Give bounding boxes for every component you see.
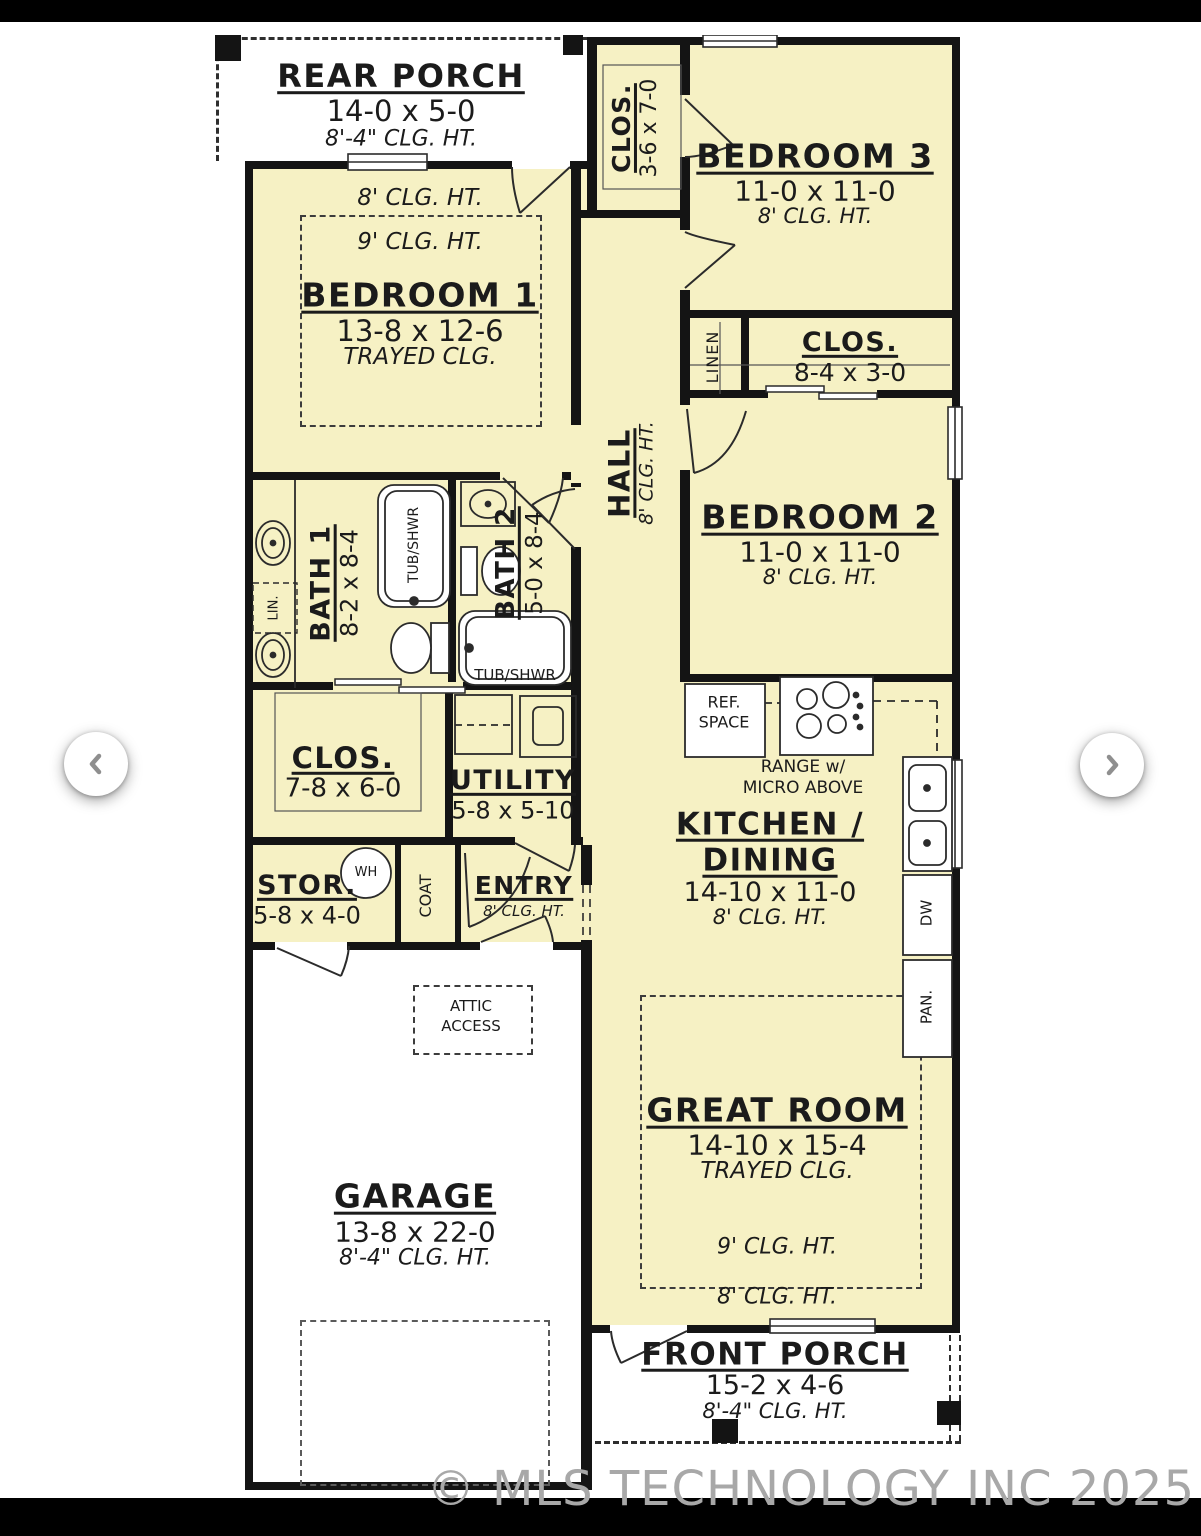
bath1-label: BATH 1 8-2 x 8-4 [306, 524, 365, 642]
bedroom1-clg9: 9' CLG. HT. [357, 230, 483, 254]
bath1-dims: 8-2 x 8-4 [337, 524, 365, 642]
greatroom-clg8: 8' CLG. HT. [717, 1285, 837, 1308]
garage-dims: 13-8 x 22-0 [334, 1217, 495, 1246]
hall-title: HALL [603, 421, 636, 525]
linen-label: LINEN [704, 331, 722, 384]
kitchen-dims: 14-10 x 11-0 [684, 879, 857, 907]
bedroom1-clg8: 8' CLG. HT. [357, 186, 483, 210]
kitchen-title-line2: DINING [702, 845, 837, 878]
attic-line1: ATTIC [450, 999, 492, 1015]
kitchen-title-line1: KITCHEN / [676, 809, 864, 842]
bath2-title: BATH 2 [492, 506, 522, 620]
next-button[interactable] [1080, 733, 1144, 797]
closet-main-dims: 7-8 x 6-0 [285, 775, 402, 802]
greatroom-title: GREAT ROOM [646, 1094, 907, 1129]
entry-ceiling: 8' CLG. HT. [483, 904, 565, 920]
rear-porch-title: REAR PORCH [277, 60, 525, 94]
bath2-dims: 5-0 x 8-4 [522, 506, 548, 620]
bath1-tub-label: TUB/SHWR [406, 507, 422, 583]
greatroom-note: TRAYED CLG. [700, 1159, 853, 1183]
bath2-tub-label: TUB/SHWR [474, 668, 556, 684]
closet-bed3-dims: 3-6 x 7-0 [637, 79, 662, 178]
closet-main-title: CLOS. [292, 743, 395, 773]
previous-button[interactable] [64, 732, 128, 796]
bedroom3-ceiling: 8' CLG. HT. [758, 205, 873, 227]
garage-ceiling: 8'-4" CLG. HT. [339, 1246, 491, 1269]
front-porch-edge-right [949, 1335, 961, 1441]
greatroom-clg9: 9' CLG. HT. [717, 1235, 837, 1258]
attic-line2: ACCESS [441, 1019, 500, 1035]
letterbox-top [0, 0, 1201, 22]
kitchen-ceiling: 8' CLG. HT. [713, 906, 828, 928]
rear-porch-edge [215, 37, 587, 40]
front-porch-edge [595, 1441, 961, 1444]
dishwasher-label: DW [918, 900, 935, 926]
front-porch-dims: 15-2 x 4-6 [706, 1372, 845, 1400]
kitchen-range-line1: RANGE w/ [761, 759, 845, 777]
bath1-linen-label: LIN. [268, 596, 283, 621]
bedroom1-note: TRAYED CLG. [343, 345, 496, 369]
porch-post [563, 35, 583, 55]
closet-bed2-dims: 8-4 x 3-0 [794, 360, 906, 386]
closet-bed2-title: CLOS. [802, 329, 898, 357]
bedroom3-dims: 11-0 x 11-0 [734, 176, 895, 205]
garage-title: GARAGE [334, 1180, 496, 1215]
bedroom1-dims: 13-8 x 12-6 [336, 316, 503, 346]
photo-viewer: REAR PORCH 14-0 x 5-0 8'-4" CLG. HT. 8' … [0, 0, 1201, 1536]
bedroom2-title: BEDROOM 2 [701, 501, 938, 536]
coat-label: COAT [417, 875, 435, 918]
storage-title: STOR. [257, 872, 357, 900]
bath1-title: BATH 1 [306, 524, 337, 642]
kitchen-ref-line1: REF. [708, 695, 741, 712]
front-porch-title: FRONT PORCH [641, 1339, 908, 1372]
kitchen-range-line2: MICRO ABOVE [743, 780, 864, 798]
bedroom3-title: BEDROOM 3 [696, 140, 933, 175]
bedroom2-ceiling: 8' CLG. HT. [763, 566, 878, 588]
rear-porch-ceiling: 8'-4" CLG. HT. [325, 127, 477, 150]
utility-dims: 5-8 x 5-10 [451, 798, 574, 823]
rear-porch-dims: 14-0 x 5-0 [327, 96, 476, 126]
hall-label: HALL 8' CLG. HT. [603, 421, 658, 525]
porch-post [937, 1401, 961, 1425]
floor-plan: REAR PORCH 14-0 x 5-0 8'-4" CLG. HT. 8' … [215, 35, 965, 1490]
hall-ceiling: 8' CLG. HT. [637, 421, 659, 525]
watermark: © MLS TECHNOLOGY INC 2025 [427, 1461, 1195, 1517]
bedroom2-dims: 11-0 x 11-0 [739, 537, 900, 566]
front-porch-ceiling: 8'-4" CLG. HT. [702, 1400, 847, 1422]
entry-title: ENTRY [475, 873, 574, 899]
storage-dims: 5-8 x 4-0 [253, 903, 361, 928]
pantry-label: PAN. [918, 990, 935, 1024]
closet-bed3-label: CLOS. 3-6 x 7-0 [608, 79, 662, 178]
utility-title: UTILITY [450, 767, 576, 795]
water-heater-label: WH [355, 866, 378, 880]
chevron-right-icon [1096, 749, 1128, 781]
closet-bed3-title: CLOS. [608, 79, 637, 178]
kitchen-ref-line2: SPACE [699, 715, 750, 732]
bedroom1-title: BEDROOM 1 [301, 279, 538, 314]
porch-post [215, 35, 241, 61]
chevron-left-icon [80, 748, 112, 780]
bath2-label: BATH 2 5-0 x 8-4 [492, 506, 548, 620]
greatroom-dims: 14-10 x 15-4 [687, 1130, 866, 1159]
